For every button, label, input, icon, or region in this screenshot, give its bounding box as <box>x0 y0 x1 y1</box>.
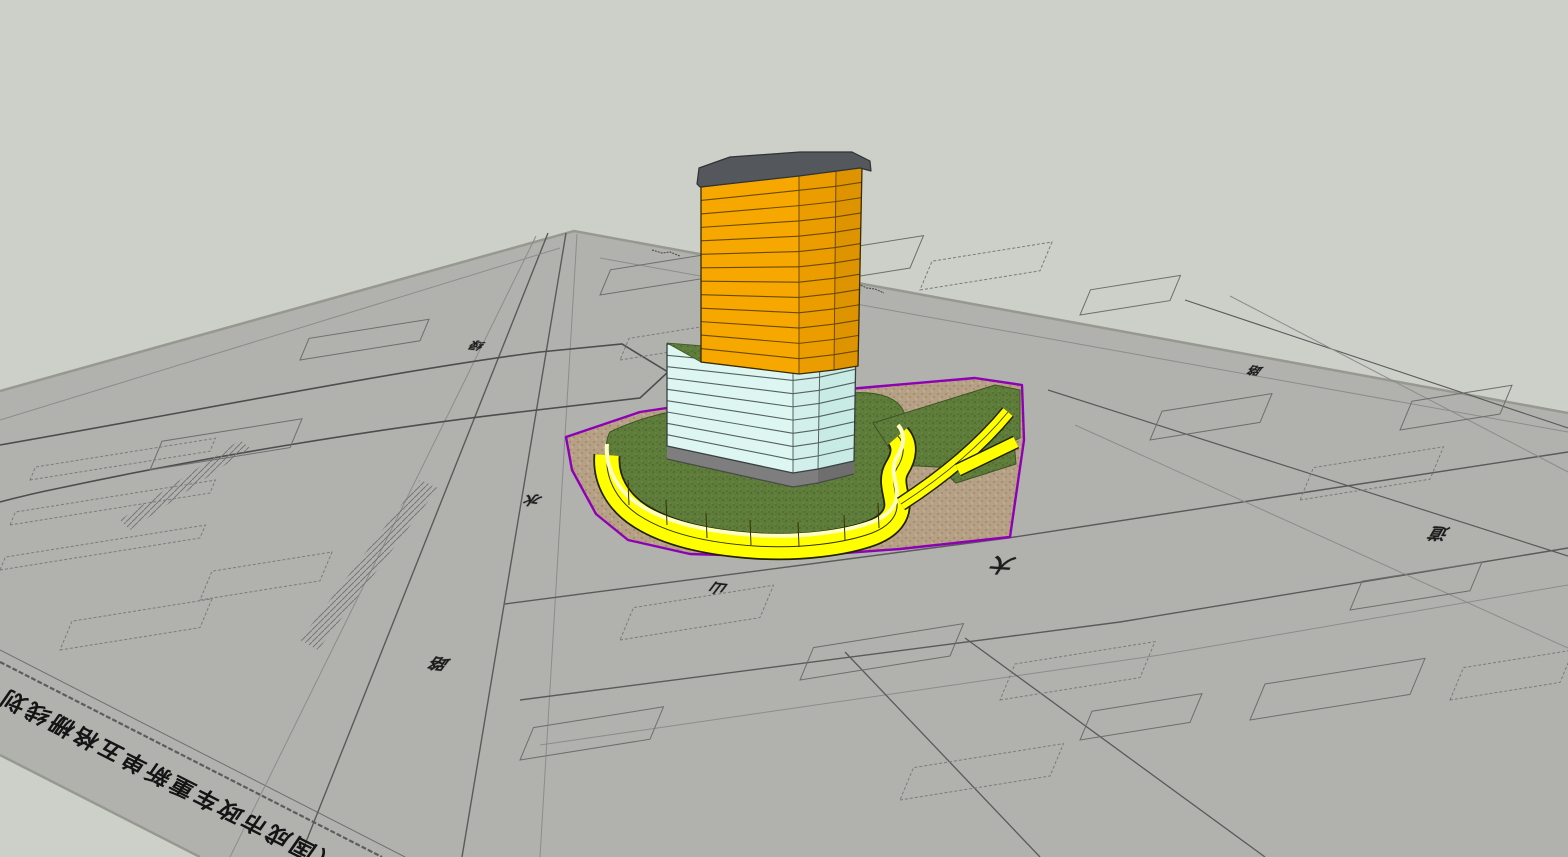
3d-viewport[interactable]: 绿 水 路 山 大 道 路 （国成市政车重新单五格栅线划 <box>0 0 1568 857</box>
scene-canvas <box>0 0 1568 857</box>
tower-upper-block <box>701 167 862 374</box>
